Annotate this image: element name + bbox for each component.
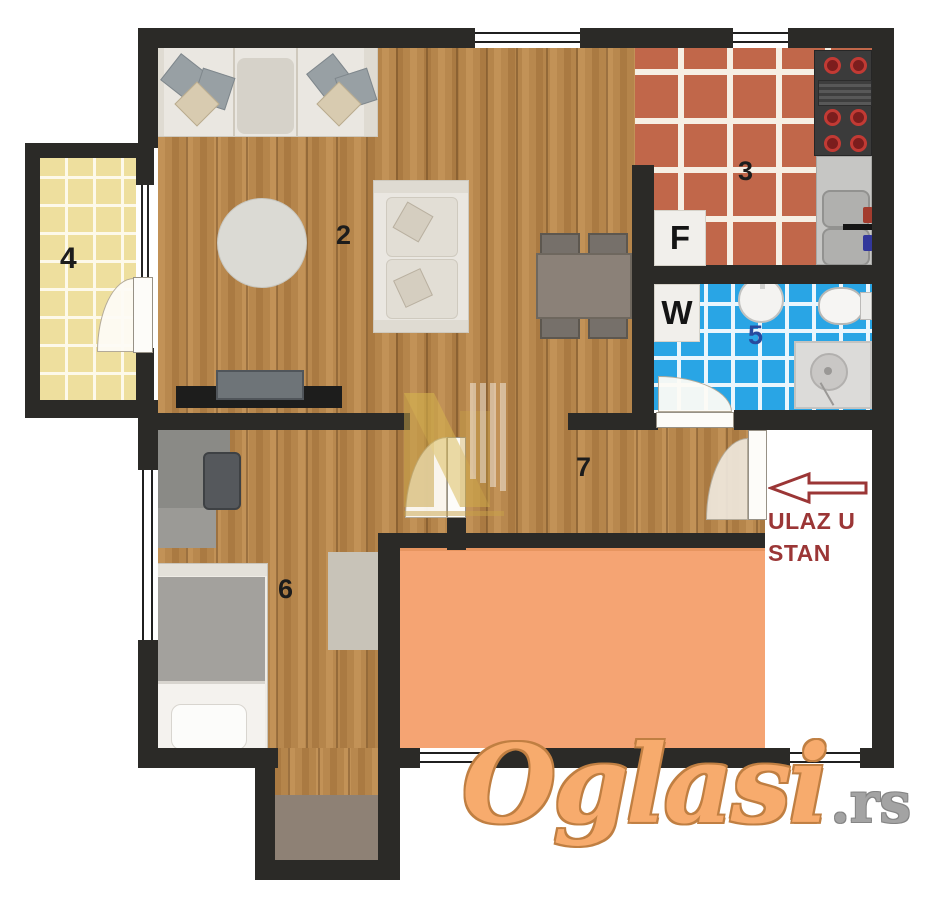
entrance-door-leaf — [748, 430, 767, 520]
sofa-small — [373, 180, 469, 333]
room-number-living: 2 — [336, 220, 351, 251]
site-watermark-brand: Oglasi — [462, 722, 826, 848]
site-watermark-suffix: .rs — [830, 770, 911, 836]
sofa-large — [150, 45, 378, 137]
toilet-tank — [860, 292, 872, 320]
window-bedroom-left — [138, 470, 158, 640]
stove-burner — [850, 57, 867, 74]
wall-right — [872, 28, 894, 768]
stove-burner — [850, 109, 867, 126]
wall-terrace-left — [378, 533, 400, 880]
stove — [814, 50, 872, 156]
washing-machine-marker: W — [654, 284, 700, 342]
entrance-label-line1: ULAZ U — [768, 508, 855, 535]
fridge-marker: F — [654, 210, 706, 266]
agency-logo-watermark — [398, 383, 518, 523]
toilet — [818, 287, 864, 325]
faucet — [843, 224, 875, 230]
dining-chair — [540, 233, 580, 255]
wall-balcony-right-lower — [136, 348, 154, 418]
dining-table — [536, 253, 632, 319]
entrance-label-line2: STAN — [768, 540, 831, 567]
balcony-door-leaf — [133, 277, 153, 353]
stove-burner — [850, 135, 867, 152]
room-number-hallway: 7 — [576, 452, 591, 483]
stove-burner — [824, 135, 841, 152]
bed — [150, 563, 268, 753]
wall-terrace-top — [378, 533, 765, 548]
desk-return — [158, 508, 216, 548]
kitchen-counter — [816, 156, 872, 265]
round-rug — [217, 198, 307, 288]
closet — [275, 795, 378, 860]
wall-kitchen-vertical — [632, 165, 654, 430]
dining-chair — [588, 317, 628, 339]
tv-screen — [216, 370, 304, 400]
wall-balcony-outer — [25, 143, 40, 418]
sofa-seam — [233, 46, 235, 136]
bed-pillow — [171, 704, 247, 750]
window-top-kitchen — [733, 28, 788, 48]
room-number-bedroom: 6 — [278, 574, 293, 605]
stove-grill — [818, 80, 872, 106]
dining-chair — [588, 233, 628, 255]
wall-balcony-right-upper — [136, 143, 154, 185]
washing-machine-label: W — [661, 294, 692, 332]
site-watermark: Oglasi.rs — [462, 722, 911, 848]
room-number-kitchen: 3 — [738, 156, 753, 187]
bed-headboard — [151, 564, 267, 576]
bedroom-rug — [328, 552, 378, 650]
shower-head-center — [824, 367, 832, 375]
stove-burner — [824, 109, 841, 126]
sofa-armrest-top — [374, 181, 468, 193]
sofa-seam — [296, 46, 298, 136]
wall-balcony-bottom — [25, 400, 154, 418]
entrance-arrow-icon — [768, 470, 870, 506]
sofa-chaise-cushion — [237, 58, 294, 134]
desk-chair — [203, 452, 241, 510]
wall-balcony-top — [25, 143, 140, 158]
terrace-room-floor — [398, 548, 765, 751]
room-number-bathroom: 5 — [748, 320, 763, 351]
wall-living-divider-left — [158, 413, 410, 430]
window-top-living — [475, 28, 580, 48]
sofa-armrest-bottom — [374, 320, 468, 332]
stove-burner — [824, 57, 841, 74]
room-number-balcony: 4 — [60, 242, 77, 276]
bathroom-door-leaf — [656, 412, 734, 428]
shower — [794, 341, 872, 409]
wall-kitchen-bathroom-divider — [654, 265, 894, 284]
bed-blanket — [153, 577, 265, 681]
balcony-floor — [40, 158, 136, 400]
fridge-label: F — [670, 219, 690, 257]
floor-plan: F W — [0, 0, 927, 900]
wall-left-upper — [138, 28, 158, 148]
dining-chair — [540, 317, 580, 339]
